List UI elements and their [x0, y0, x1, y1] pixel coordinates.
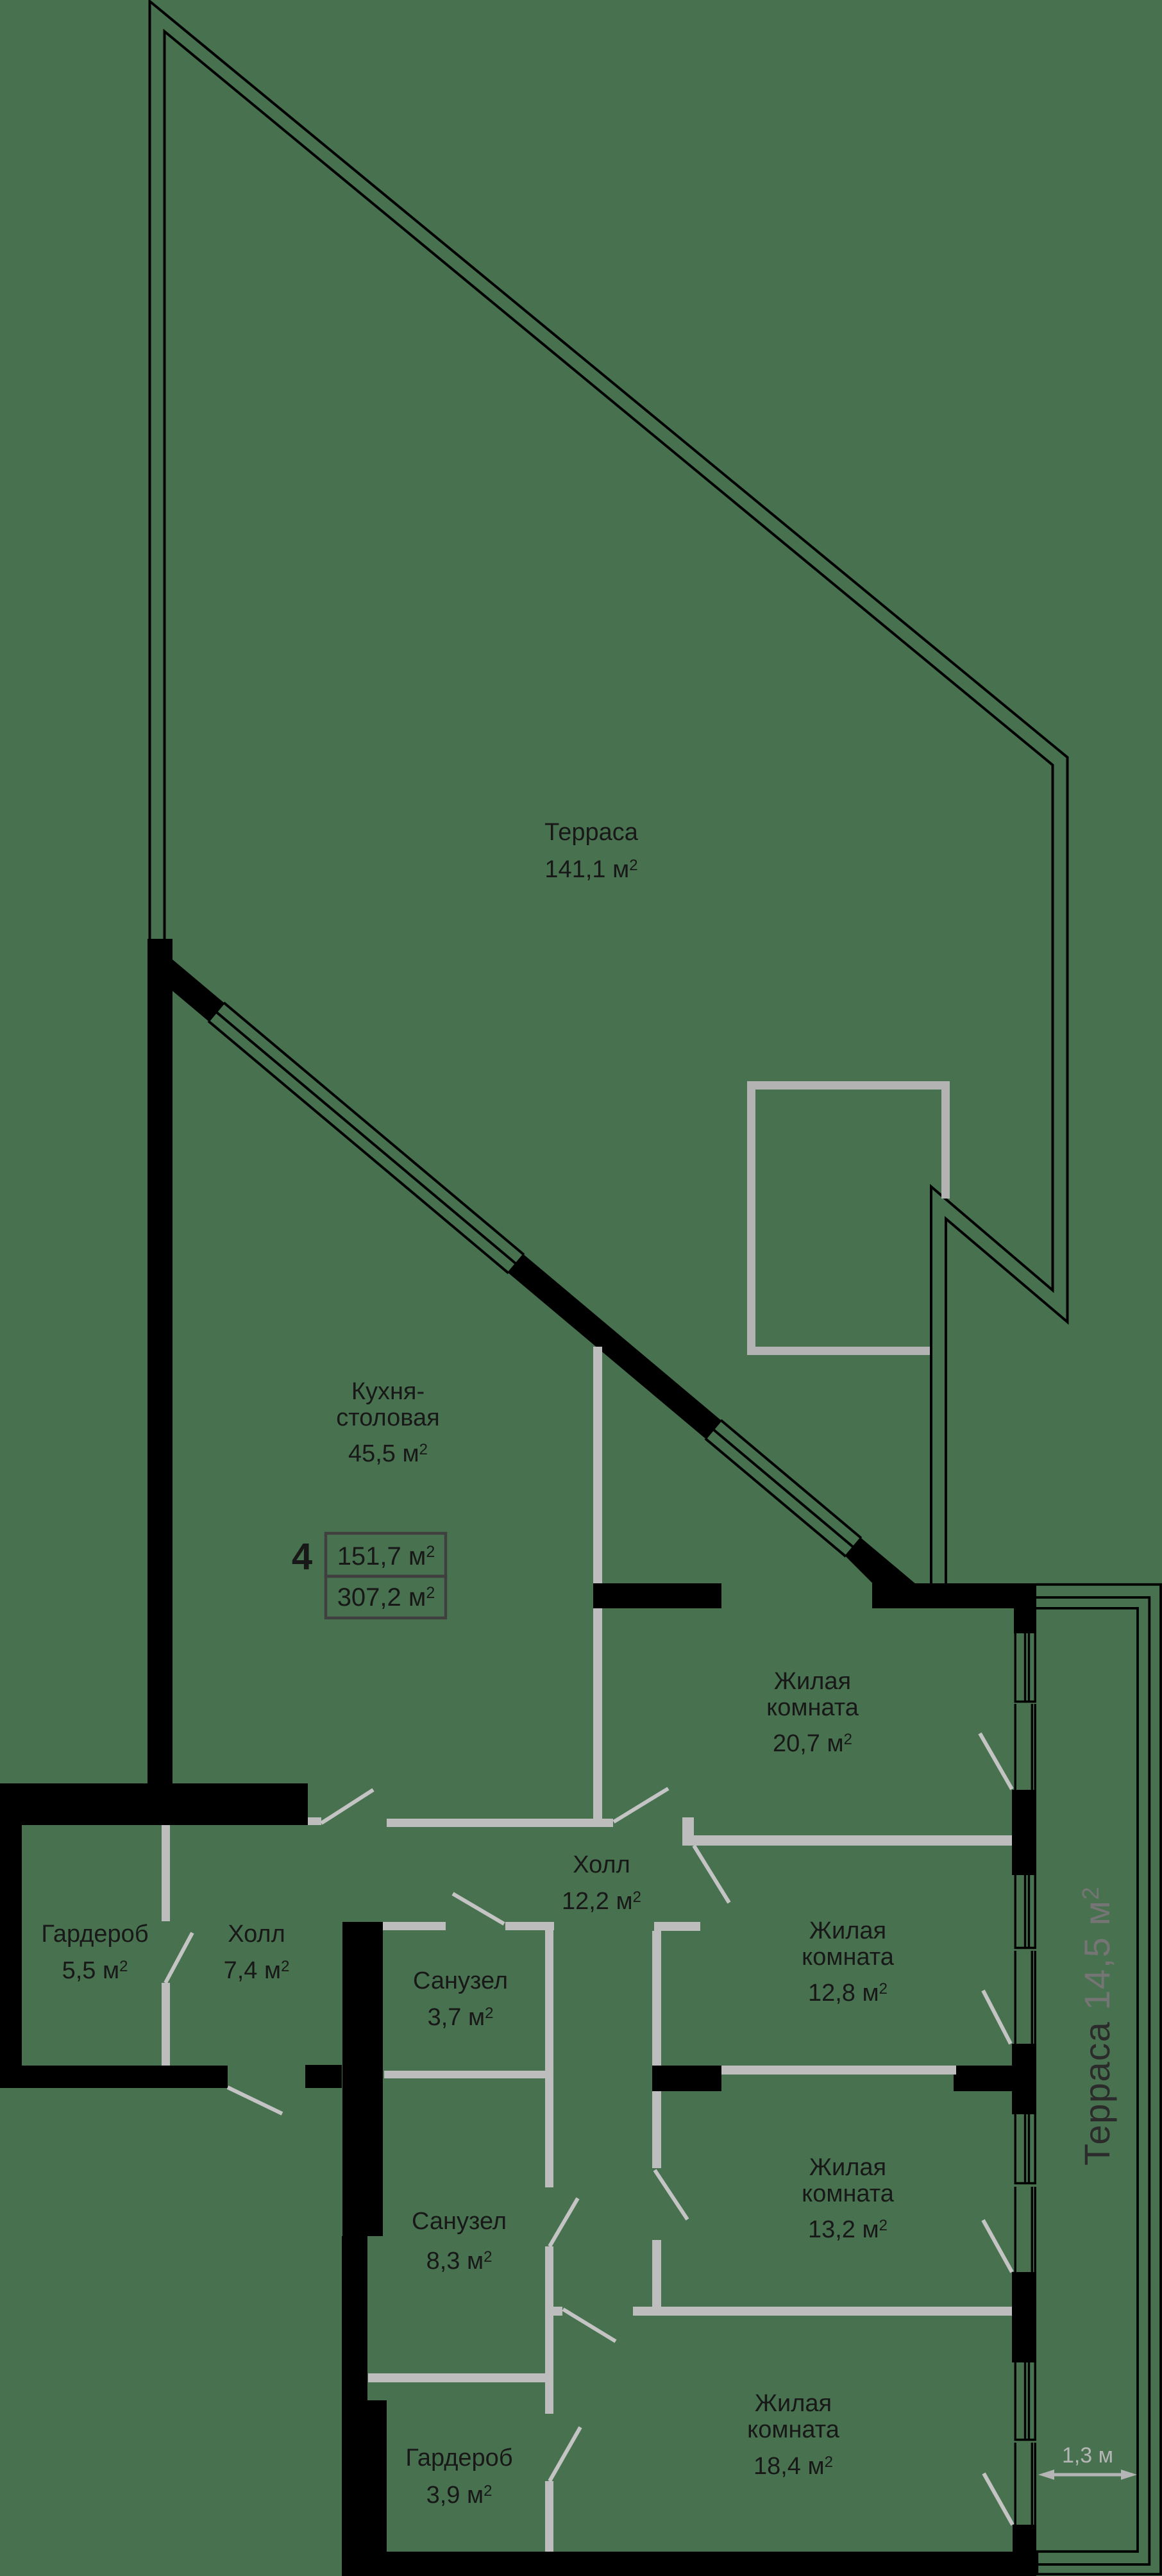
svg-text:Жилая: Жилая: [755, 2390, 832, 2417]
svg-text:Кухня-: Кухня-: [351, 1378, 425, 1405]
svg-text:13,2 м2: 13,2 м2: [808, 2216, 888, 2243]
svg-text:20,7 м2: 20,7 м2: [773, 1730, 852, 1757]
svg-text:Жилая: Жилая: [809, 1917, 886, 1944]
svg-text:3,9 м2: 3,9 м2: [426, 2482, 493, 2509]
svg-text:комната: комната: [802, 2180, 895, 2207]
svg-text:12,2 м2: 12,2 м2: [562, 1888, 641, 1915]
svg-text:комната: комната: [802, 1944, 895, 1971]
svg-text:Санузел: Санузел: [413, 1967, 508, 1994]
svg-text:307,2 м2: 307,2 м2: [337, 1583, 435, 1612]
svg-text:151,7 м2: 151,7 м2: [337, 1542, 435, 1570]
svg-text:141,1 м2: 141,1 м2: [544, 856, 637, 883]
svg-text:Санузел: Санузел: [412, 2208, 507, 2235]
svg-text:столовая: столовая: [336, 1404, 439, 1431]
svg-text:Жилая: Жилая: [809, 2154, 886, 2181]
svg-text:7,4 м2: 7,4 м2: [224, 1957, 290, 1984]
svg-text:комната: комната: [747, 2416, 840, 2443]
svg-text:18,4 м2: 18,4 м2: [754, 2453, 833, 2480]
svg-text:Холл: Холл: [228, 1921, 285, 1948]
svg-text:12,8 м2: 12,8 м2: [808, 1980, 888, 2007]
svg-text:Жилая: Жилая: [774, 1668, 851, 1695]
svg-text:комната: комната: [766, 1694, 859, 1721]
svg-text:5,5 м2: 5,5 м2: [62, 1957, 128, 1984]
svg-text:Холл: Холл: [573, 1851, 630, 1878]
svg-text:4: 4: [292, 1536, 312, 1578]
svg-text:Гардероб: Гардероб: [405, 2445, 512, 2471]
svg-text:45,5 м2: 45,5 м2: [348, 1440, 428, 1467]
svg-text:Терраса 14,5 м2: Терраса 14,5 м2: [1077, 1886, 1117, 2166]
svg-text:Терраса: Терраса: [544, 819, 639, 846]
svg-text:1,3 м: 1,3 м: [1062, 2443, 1113, 2468]
svg-text:8,3 м2: 8,3 м2: [426, 2248, 493, 2275]
svg-text:Гардероб: Гардероб: [41, 1921, 148, 1948]
svg-text:3,7 м2: 3,7 м2: [428, 2004, 494, 2031]
